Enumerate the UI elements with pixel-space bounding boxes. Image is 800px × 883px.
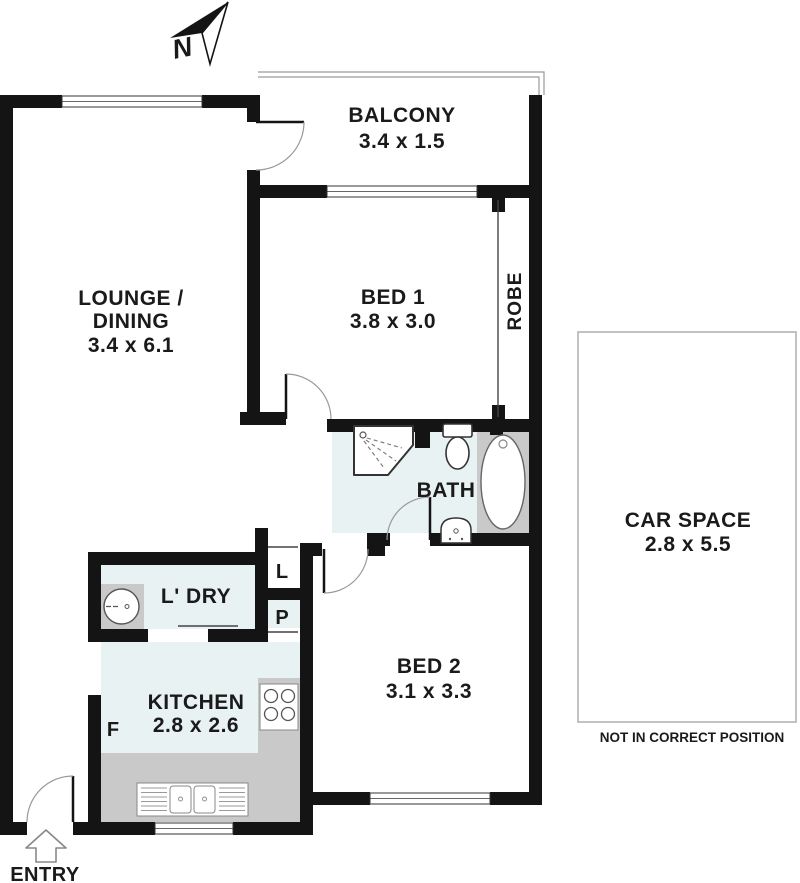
- north-label: N: [169, 31, 195, 65]
- bathtub-drain-icon: [499, 440, 507, 448]
- bathtub-icon: [481, 435, 525, 529]
- entry-label: ENTRY: [10, 864, 80, 883]
- car-space-dims: 2.8 x 5.5: [645, 533, 731, 556]
- kitchen-dims: 2.8 x 2.6: [153, 714, 239, 737]
- toilet-bowl-icon: [446, 437, 469, 469]
- linen-label: L: [276, 561, 288, 583]
- bed2-door-arc: [324, 549, 368, 593]
- floor-plan: N BALCONY 3.4 x 1.5 LOUNGE / DINING 3.4 …: [0, 0, 800, 883]
- bath-label: BATH: [417, 479, 476, 502]
- balcony-rail: [258, 72, 544, 95]
- bed1-label: BED 1: [361, 286, 425, 309]
- bath-sink-icon: [441, 518, 471, 543]
- entry-door-arc: [27, 776, 73, 822]
- pantry-label: P: [275, 607, 288, 629]
- bed1-dims: 3.8 x 3.0: [350, 310, 436, 333]
- balcony-door-arc: [256, 122, 304, 170]
- lounge-label-line1: LOUNGE /: [78, 287, 184, 310]
- bed2-dims: 3.1 x 3.3: [386, 680, 472, 703]
- car-space-note: NOT IN CORRECT POSITION: [600, 730, 785, 745]
- laundry-label: L' DRY: [161, 585, 231, 608]
- bed2-label: BED 2: [397, 655, 461, 678]
- balcony-dims: 3.4 x 1.5: [359, 130, 445, 153]
- robe-label: ROBE: [505, 272, 526, 331]
- lounge-label-line2: DINING: [93, 310, 170, 333]
- lounge-dims: 3.4 x 6.1: [88, 334, 174, 357]
- car-space-label: CAR SPACE: [625, 509, 752, 532]
- bed1-door-arc: [286, 374, 331, 419]
- balcony-label: BALCONY: [348, 104, 455, 127]
- kitchen-label: KITCHEN: [148, 691, 245, 714]
- fridge-label: F: [107, 719, 119, 741]
- entry-arrow-icon: [26, 830, 66, 862]
- laundry-fixtures: [104, 589, 139, 624]
- toilet-tank-icon: [443, 424, 472, 437]
